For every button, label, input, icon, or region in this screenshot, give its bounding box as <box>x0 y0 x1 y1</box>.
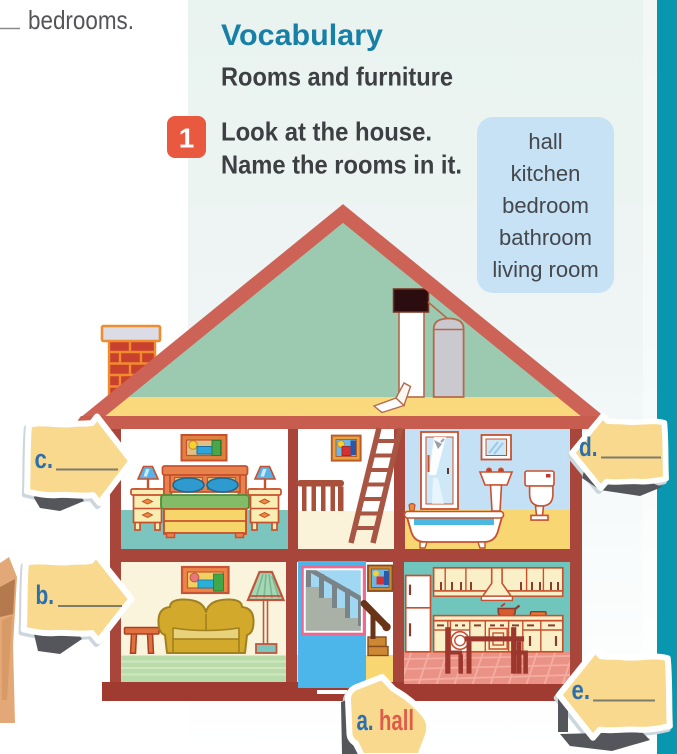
svg-text:b.: b. <box>36 580 55 610</box>
svg-text:Name the rooms in it.: Name the rooms in it. <box>221 150 462 180</box>
svg-text:a.: a. <box>357 705 374 737</box>
svg-text:Rooms and furniture: Rooms and furniture <box>221 62 453 92</box>
svg-text:living room: living room <box>492 257 598 282</box>
svg-text:e.: e. <box>572 675 591 705</box>
svg-text:bedroom: bedroom <box>502 193 589 218</box>
svg-text:hall: hall <box>528 129 562 154</box>
svg-text:c.: c. <box>35 444 54 474</box>
svg-text:1: 1 <box>179 123 195 154</box>
svg-text:hall: hall <box>379 705 414 737</box>
svg-text:d.: d. <box>579 432 598 462</box>
svg-text:bathroom: bathroom <box>499 225 592 250</box>
svg-text:Look at the house.: Look at the house. <box>221 117 432 147</box>
svg-text:Vocabulary: Vocabulary <box>221 19 384 52</box>
svg-text:bedrooms.: bedrooms. <box>28 5 134 35</box>
svg-text:kitchen: kitchen <box>511 161 581 186</box>
